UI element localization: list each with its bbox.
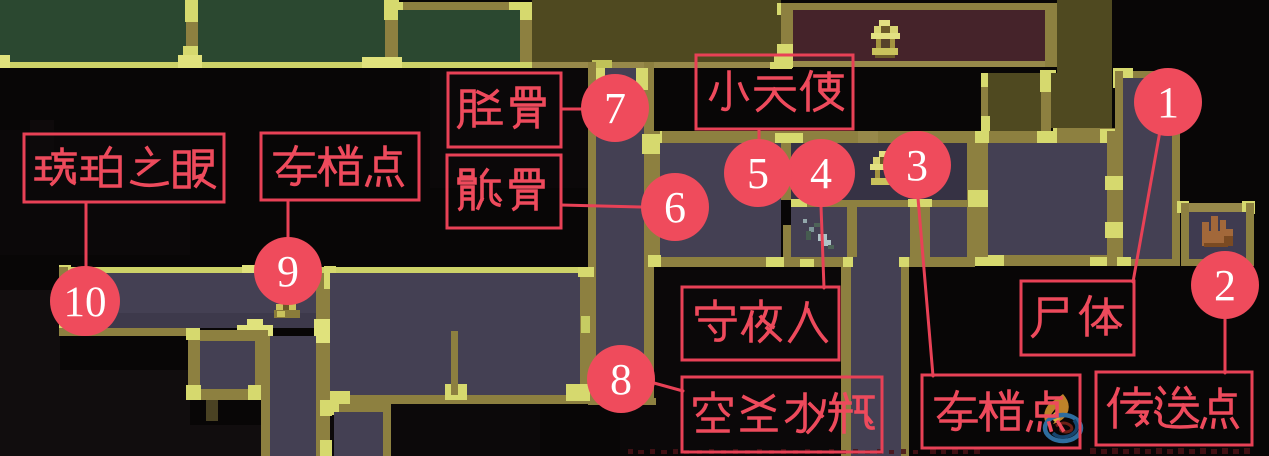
svg-text:2: 2 [1214,261,1236,310]
svg-text:1: 1 [1157,78,1179,127]
svg-text:4: 4 [810,149,832,198]
svg-text:10: 10 [64,279,107,326]
svg-text:6: 6 [664,183,686,232]
svg-text:7: 7 [604,84,626,133]
svg-text:8: 8 [610,355,632,404]
svg-text:5: 5 [747,149,769,198]
svg-text:3: 3 [906,141,928,190]
svg-text:9: 9 [277,247,299,296]
